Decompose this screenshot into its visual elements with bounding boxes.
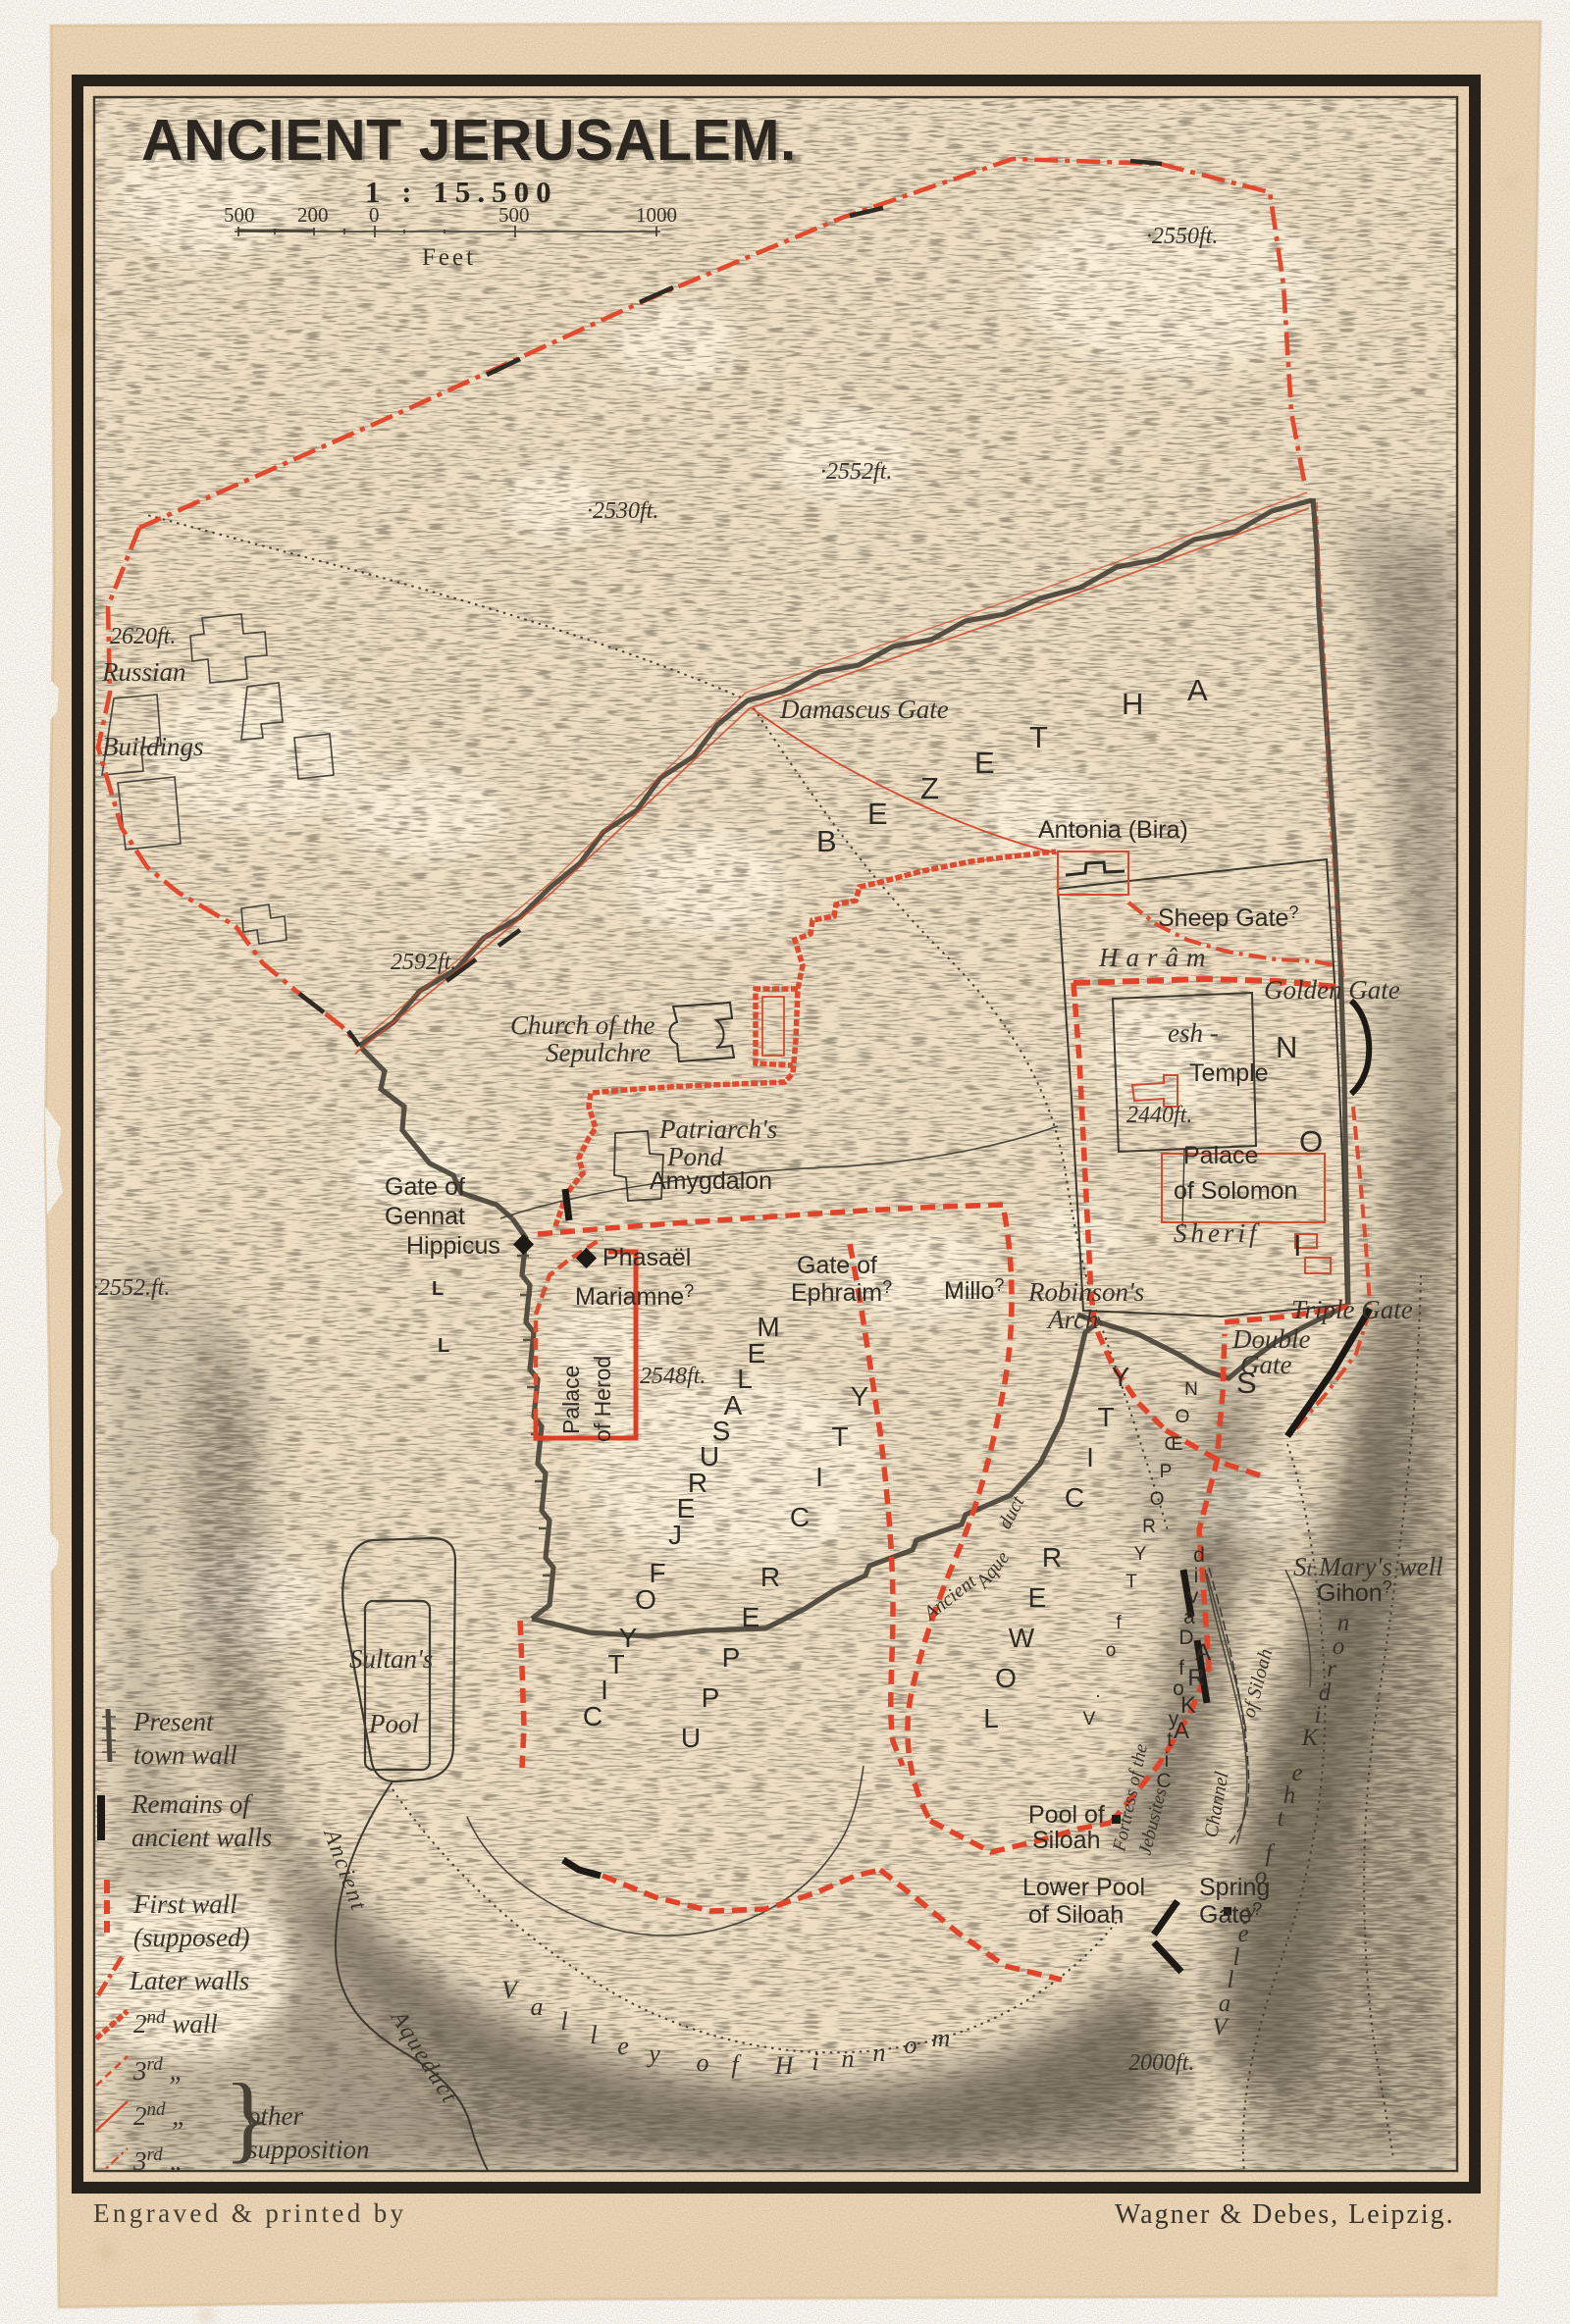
svg-text:0: 0 — [369, 203, 380, 227]
svg-text:a: a — [1183, 1606, 1195, 1628]
svg-text:l: l — [1233, 1944, 1240, 1971]
svg-text:W: W — [1009, 1623, 1035, 1653]
svg-text:200: 200 — [297, 203, 329, 227]
svg-text:L: L — [983, 1703, 999, 1733]
svg-text:Pool of: Pool of — [1028, 1801, 1105, 1829]
svg-text:i: i — [1165, 1749, 1170, 1772]
svg-text:R: R — [688, 1468, 707, 1498]
svg-text:}: } — [224, 2063, 271, 2172]
svg-text:.: . — [1095, 1681, 1100, 1702]
svg-text:C: C — [583, 1701, 602, 1731]
svg-text:K: K — [1301, 1725, 1320, 1751]
svg-text:R: R — [1042, 1542, 1062, 1573]
svg-text:Robinson's: Robinson's — [1027, 1277, 1144, 1307]
svg-text:E: E — [748, 1338, 766, 1369]
svg-text:A: A — [1195, 1639, 1211, 1666]
svg-text:Russian: Russian — [101, 657, 186, 687]
svg-text:Wagner & Debes, Leipzig.: Wagner & Debes, Leipzig. — [1115, 2199, 1455, 2230]
svg-text:2nd wall: 2nd wall — [133, 2007, 218, 2039]
svg-text:H: H — [774, 2051, 795, 2080]
svg-text:Sepulchre: Sepulchre — [546, 1038, 651, 1067]
svg-text:a: a — [1219, 1990, 1231, 2017]
svg-text:l: l — [560, 2007, 567, 2036]
svg-text:t: t — [1167, 1729, 1173, 1751]
svg-text:2000ft.: 2000ft. — [1128, 2050, 1194, 2076]
svg-text:Y: Y — [1134, 1544, 1147, 1565]
svg-text:ancient walls: ancient walls — [131, 1823, 272, 1852]
svg-text:Harâm: Harâm — [1098, 943, 1214, 972]
svg-text:Church of the: Church of the — [510, 1010, 655, 1040]
svg-text:I: I — [815, 1462, 823, 1492]
svg-text:Gate of: Gate of — [797, 1252, 877, 1279]
svg-text:T: T — [831, 1421, 848, 1452]
svg-text:L: L — [432, 1278, 444, 1300]
svg-text:Y: Y — [1112, 1362, 1130, 1392]
svg-text:K: K — [1180, 1692, 1196, 1719]
svg-text:i: i — [811, 2047, 818, 2076]
svg-text:ANCIENT JERUSALEM.: ANCIENT JERUSALEM. — [141, 108, 797, 173]
svg-text:Sultan's: Sultan's — [349, 1644, 433, 1674]
svg-text:Remains of: Remains of — [131, 1789, 253, 1819]
svg-text:m: m — [932, 2024, 951, 2052]
svg-text:l: l — [1228, 1967, 1234, 1993]
svg-text:A: A — [724, 1390, 743, 1420]
svg-text:y: y — [646, 2040, 660, 2068]
svg-text:A: A — [1187, 673, 1208, 707]
svg-text:Sheep Gate?: Sheep Gate? — [1158, 903, 1298, 932]
svg-text:B: B — [816, 824, 837, 858]
svg-text:S: S — [1236, 1366, 1257, 1400]
svg-text:C: C — [790, 1502, 810, 1532]
svg-text:Buildings: Buildings — [102, 732, 204, 761]
svg-text:·2550ft.: ·2550ft. — [1146, 224, 1218, 249]
svg-text:T: T — [1125, 1572, 1137, 1592]
svg-text:Siloah: Siloah — [1032, 1827, 1101, 1854]
svg-text:C: C — [1065, 1482, 1084, 1513]
svg-text:Ephraim?: Ephraim? — [791, 1277, 892, 1307]
svg-text:v: v — [1188, 1585, 1199, 1608]
svg-text:500: 500 — [498, 203, 530, 227]
svg-text:O: O — [635, 1584, 656, 1615]
svg-text:Gennat: Gennat — [385, 1203, 465, 1230]
svg-text:E: E — [867, 797, 888, 831]
svg-text:f: f — [1116, 1613, 1122, 1633]
svg-text:E: E — [742, 1602, 760, 1632]
svg-text:2548ft.: 2548ft. — [640, 1364, 706, 1389]
svg-text:P: P — [1160, 1462, 1173, 1482]
svg-text:2620ft.: 2620ft. — [110, 624, 176, 649]
svg-text:of Solomon: of Solomon — [1174, 1177, 1297, 1205]
svg-text:T: T — [1029, 720, 1048, 754]
svg-text:H: H — [1122, 687, 1143, 721]
svg-text:Gihon?: Gihon? — [1317, 1577, 1392, 1607]
svg-text:town wall: town wall — [133, 1740, 237, 1770]
svg-text:·2552ft.: ·2552ft. — [820, 459, 892, 485]
svg-text:Y: Y — [851, 1381, 869, 1412]
svg-text:e: e — [1237, 1921, 1248, 1947]
svg-text:500: 500 — [224, 203, 255, 227]
svg-text:t: t — [1278, 1805, 1285, 1832]
svg-text:Damascus Gate: Damascus Gate — [779, 695, 949, 724]
svg-text:E: E — [1028, 1582, 1047, 1613]
svg-text:Arch: Arch — [1046, 1305, 1098, 1334]
svg-text:L: L — [438, 1335, 449, 1357]
svg-text:Z: Z — [920, 771, 939, 805]
svg-text:i: i — [1315, 1702, 1322, 1729]
svg-text:Patriarch's: Patriarch's — [658, 1114, 777, 1144]
svg-text:a: a — [531, 1992, 544, 2021]
svg-text:M: M — [757, 1312, 779, 1342]
svg-text:D: D — [1178, 1627, 1193, 1649]
svg-text:o: o — [1255, 1863, 1268, 1889]
svg-text:o: o — [1106, 1640, 1117, 1661]
svg-text:·2530ft.: ·2530ft. — [587, 498, 658, 524]
svg-text:o: o — [697, 2048, 709, 2077]
svg-text:Antonia (Bira): Antonia (Bira) — [1038, 816, 1188, 844]
svg-text:of Herod: of Herod — [590, 1356, 615, 1442]
svg-text:Engraved & printed by: Engraved & printed by — [93, 2198, 407, 2228]
svg-text:2592ft.: 2592ft. — [391, 950, 456, 975]
svg-text:e: e — [617, 2032, 629, 2060]
svg-text:d: d — [1193, 1544, 1205, 1567]
svg-text:O: O — [1150, 1489, 1165, 1510]
svg-text:Y: Y — [619, 1623, 638, 1653]
svg-text:Hippicus: Hippicus — [406, 1232, 500, 1260]
svg-text:Temple: Temple — [1189, 1059, 1269, 1087]
svg-text:V: V — [1083, 1709, 1096, 1730]
svg-text:Sherif: Sherif — [1174, 1218, 1261, 1248]
svg-text:l: l — [590, 2021, 597, 2049]
svg-text:Palace: Palace — [1183, 1142, 1258, 1169]
svg-text:Pool: Pool — [368, 1709, 419, 1738]
svg-text:J: J — [668, 1520, 682, 1550]
svg-text:T: T — [607, 1649, 624, 1679]
svg-text:Mariamne?: Mariamne? — [575, 1281, 694, 1311]
svg-text:2440ft.: 2440ft. — [1126, 1103, 1192, 1128]
svg-text:U: U — [681, 1723, 701, 1753]
svg-text:A: A — [1174, 1718, 1189, 1744]
svg-text:P: P — [702, 1682, 720, 1713]
svg-text:i: i — [1194, 1565, 1199, 1587]
svg-text:R: R — [1187, 1665, 1204, 1691]
svg-text:esh -: esh - — [1168, 1018, 1219, 1048]
svg-text:R: R — [760, 1562, 780, 1592]
svg-text:T: T — [1097, 1402, 1114, 1432]
svg-text:N: N — [1184, 1379, 1198, 1400]
svg-text:n: n — [842, 2044, 855, 2073]
svg-text:Œ: Œ — [1165, 1434, 1183, 1455]
svg-text:O: O — [995, 1663, 1017, 1693]
svg-text:d: d — [1319, 1679, 1332, 1706]
svg-text:Golden Gate: Golden Gate — [1264, 975, 1400, 1005]
svg-text:Lower Pool: Lower Pool — [1022, 1874, 1145, 1901]
svg-text:Gate of: Gate of — [385, 1173, 465, 1201]
svg-text:O: O — [1299, 1124, 1323, 1159]
svg-text:Triple Gate: Triple Gate — [1291, 1295, 1413, 1324]
svg-text:F: F — [649, 1558, 665, 1588]
svg-text:1000: 1000 — [636, 203, 677, 227]
svg-text:of Siloah: of Siloah — [1028, 1901, 1124, 1929]
svg-text:f: f — [1178, 1657, 1184, 1679]
svg-text:Present: Present — [132, 1707, 215, 1736]
svg-text:(supposed): (supposed) — [133, 1923, 249, 1952]
svg-text:Later walls: Later walls — [129, 1966, 249, 1995]
svg-text:o: o — [905, 2031, 917, 2059]
svg-text:E: E — [974, 746, 995, 780]
svg-text:r: r — [1327, 1656, 1336, 1682]
svg-text:Amygdalon: Amygdalon — [650, 1167, 772, 1195]
svg-text:n: n — [1337, 1610, 1350, 1636]
svg-text:n: n — [873, 2039, 886, 2067]
svg-text:First wall: First wall — [132, 1889, 237, 1919]
svg-text:Feet: Feet — [422, 244, 476, 271]
svg-text:h: h — [1283, 1782, 1296, 1809]
svg-text:St Mary's well: St Mary's well — [1293, 1552, 1443, 1581]
svg-text:Phasaël: Phasaël — [602, 1244, 691, 1271]
svg-text:I: I — [1086, 1442, 1094, 1472]
svg-text:Palace: Palace — [558, 1366, 584, 1434]
svg-text:R: R — [1142, 1517, 1156, 1537]
svg-text:o: o — [1333, 1633, 1345, 1660]
svg-text:P: P — [722, 1642, 741, 1673]
svg-text:O: O — [1176, 1407, 1190, 1427]
svg-text:·2552.ft.: ·2552.ft. — [92, 1275, 170, 1301]
svg-text:N: N — [1276, 1030, 1297, 1064]
svg-text:I: I — [1293, 1228, 1302, 1263]
